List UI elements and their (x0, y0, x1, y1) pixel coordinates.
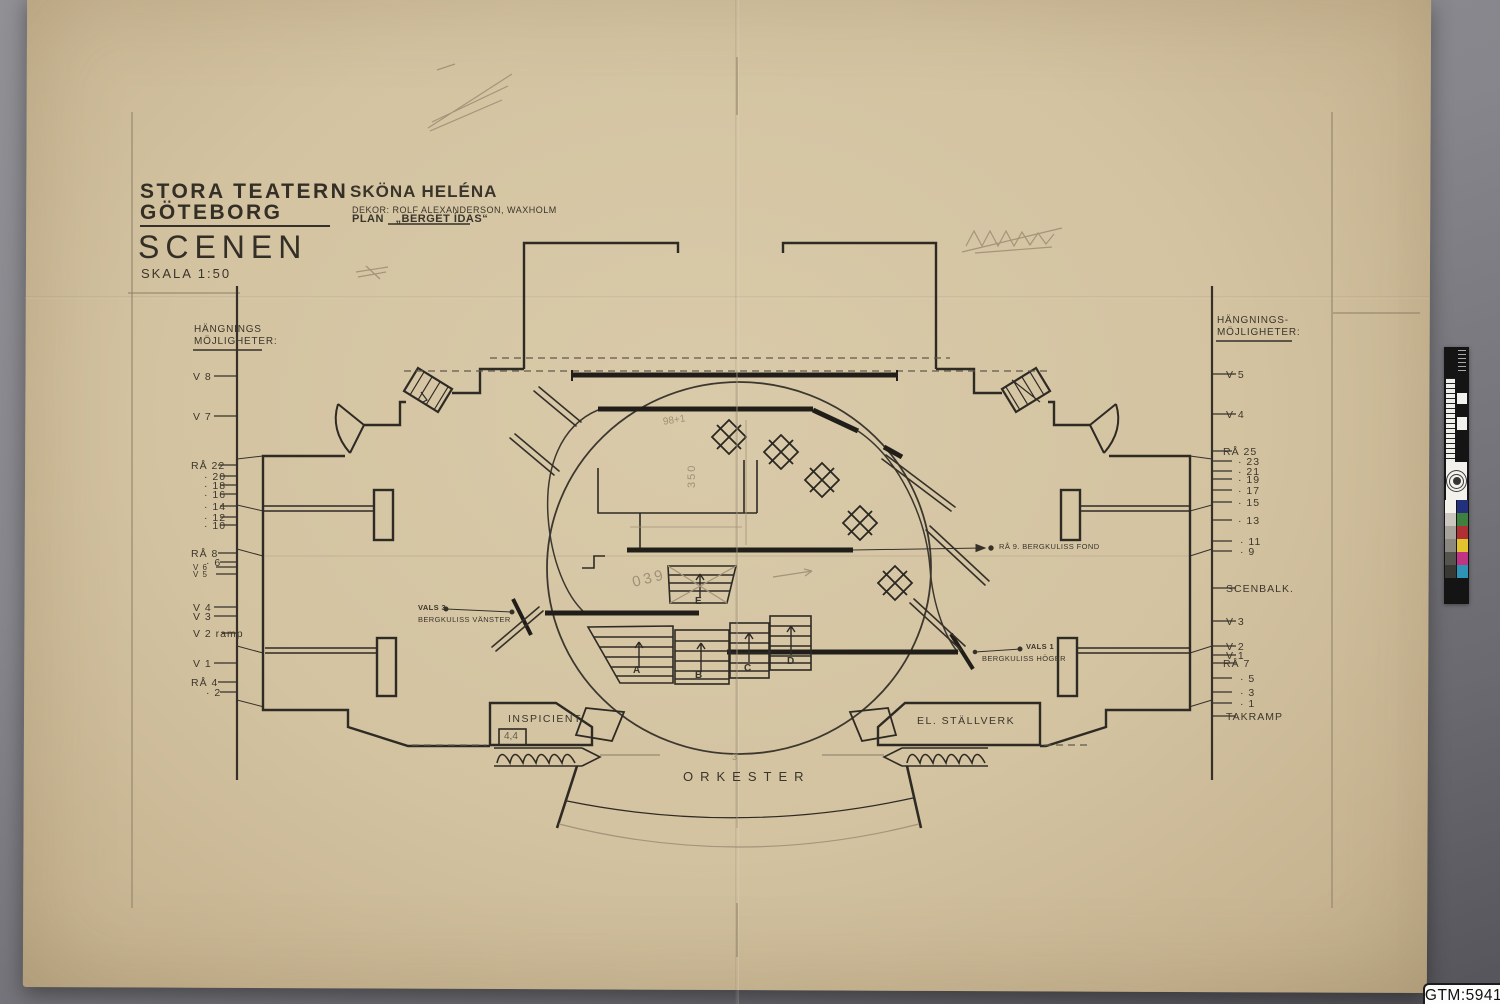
rigging-item: V 1 (193, 658, 212, 670)
left-rigging-bar (214, 286, 264, 780)
platform-e-label: E (695, 596, 702, 607)
rigging-item: V 5 (1226, 369, 1245, 381)
right-rigging-header1: HÄNGNINGS- (1217, 315, 1289, 326)
set-pieces-thick (513, 370, 973, 669)
platform-c-label: C (744, 663, 751, 674)
hatched-stair-right (1002, 368, 1050, 412)
color-patch (1457, 526, 1468, 539)
strip-caption-text (1458, 350, 1466, 374)
photographed-stage-plan: STORA TEATERN GÖTEBORG SCENEN SKALA 1:50… (0, 0, 1500, 1004)
rigging-item: · 1 (1240, 698, 1255, 710)
rigging-item: · 16 (204, 489, 226, 501)
strip-focus-target (1446, 462, 1467, 500)
revolving-stage-circle (547, 382, 931, 754)
rigging-item: V 4 (1226, 409, 1245, 421)
rigging-item: · 17 (1238, 485, 1260, 497)
platform-b-label: B (695, 670, 702, 681)
stallverk-label: EL. STÄLLVERK (917, 715, 1015, 727)
strip-checker (1457, 417, 1467, 430)
gray-patch (1445, 526, 1456, 539)
hatched-stair-left (404, 368, 452, 412)
rigging-item: TAKRAMP (1226, 711, 1283, 723)
bell-opening-right (1090, 404, 1118, 453)
gray-patch (1445, 500, 1456, 513)
rigging-item: · 13 (1238, 515, 1260, 527)
bell-opening-left (336, 404, 364, 453)
rigging-item: · 5 (1240, 673, 1255, 685)
rigging-item: SCENBALK. (1226, 583, 1294, 595)
vals1-annotation: VALS 1 (1026, 642, 1054, 651)
diamond-set-pieces (712, 420, 912, 600)
color-calibration-strip (1444, 347, 1469, 604)
vals3-sub-annotation: BERGKULISS VÄNSTER (418, 615, 511, 624)
gray-patch (1445, 513, 1456, 526)
strip-checker (1457, 393, 1467, 404)
strip-ruler (1446, 378, 1455, 462)
pencil-note: 350 (686, 464, 698, 488)
sheet-title: SCENEN (138, 229, 307, 266)
pencil-note: 3 (732, 752, 737, 762)
color-patch (1457, 539, 1468, 552)
rigging-item: V 7 (193, 411, 212, 423)
gray-patch (1445, 539, 1456, 552)
production-plan: PLAN „BERGET ÍDAS“ (352, 213, 488, 225)
right-rigging-header2: MÖJLIGHETER: (1217, 327, 1301, 338)
left-rigging-header1: HÄNGNINGS (194, 324, 262, 335)
rigging-item: V 8 (193, 371, 212, 383)
rigging-item: V 2 ramp (193, 628, 244, 640)
vals1-sub-annotation: BERGKULISS HÖGER (982, 654, 1066, 663)
rigging-item: · 2 (206, 687, 221, 699)
color-patch (1457, 513, 1468, 526)
vals3-annotation: VALS 3 (418, 603, 446, 612)
right-rigging-bar (1189, 286, 1236, 780)
color-patch (1457, 552, 1468, 565)
theater-name-line2: GÖTEBORG (140, 201, 283, 225)
plan-label: PLAN (352, 213, 384, 225)
platform-d-label: D (787, 656, 794, 667)
rigging-item: RÅ 7 (1223, 658, 1250, 670)
platform-a-label: A (633, 665, 640, 676)
rigging-item: · 10 (204, 520, 226, 532)
color-patch (1457, 565, 1468, 578)
rigging-item: V 5 (193, 570, 208, 579)
text-underlines (140, 224, 1292, 350)
inspicient-label: INSPICIENT (508, 713, 582, 725)
pencil-note: 4,4 (504, 731, 518, 742)
rigging-item: · 6 (206, 557, 221, 569)
left-rigging-header2: MÖJLIGHETER: (194, 336, 278, 347)
gray-patch (1445, 552, 1456, 565)
fond-annotation: RÅ 9. BERGKULISS FOND (999, 542, 1100, 551)
rigging-item: V 3 (193, 611, 212, 623)
rigging-item: · 9 (1240, 546, 1255, 558)
rigging-item: · 15 (1238, 497, 1260, 509)
production-title: SKÖNA HELÉNA (350, 182, 497, 202)
proscenium (557, 755, 921, 828)
gray-patch (1445, 565, 1456, 578)
plan-name: „BERGET ÍDAS“ (396, 213, 489, 225)
catalog-number-label: GTM:5941 (1423, 983, 1500, 1004)
stallverk-box (850, 703, 1040, 766)
color-patch (1457, 500, 1468, 513)
rigging-item: V 3 (1226, 616, 1245, 628)
orchestra-label: ORKESTER (683, 769, 811, 784)
set-oval (548, 410, 958, 652)
scale-note: SKALA 1:50 (141, 266, 231, 281)
